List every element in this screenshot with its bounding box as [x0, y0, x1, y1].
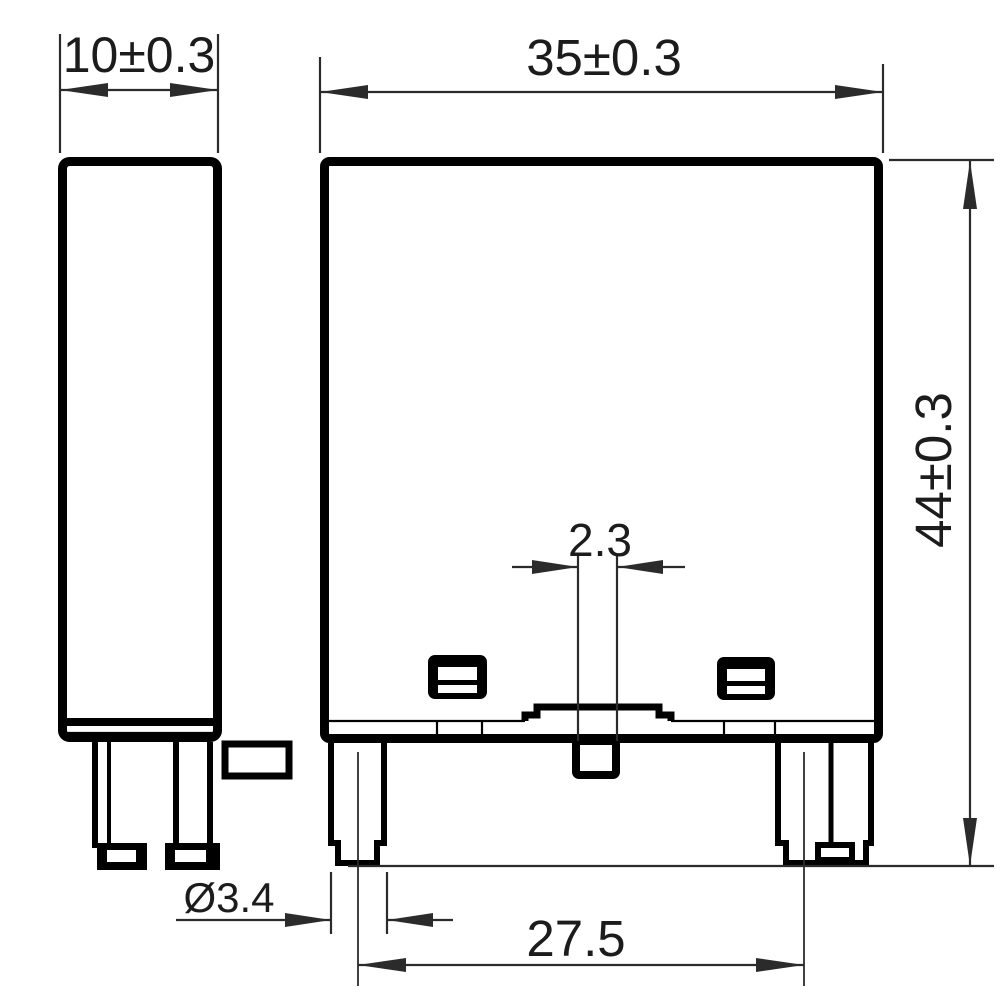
front-pin-right-notch	[818, 845, 852, 860]
dim-pin-pitch-label: 27.5	[526, 910, 625, 967]
arrowhead-right-icon	[170, 83, 218, 97]
dim-side-width-label: 10±0.3	[63, 27, 216, 83]
side-tab	[225, 744, 289, 776]
vent-slot-left-opening-top	[438, 667, 477, 680]
arrowhead-left-icon	[320, 85, 368, 99]
arrowhead-left-icon	[358, 958, 406, 972]
dim-body-height-label: 44±0.3	[905, 392, 962, 548]
front-body-outline	[325, 162, 879, 739]
dim-pin-pitch: 27.5	[358, 752, 804, 986]
arrowhead-right-icon	[835, 85, 883, 99]
dim-pin-diameter: Ø3.4	[176, 872, 453, 934]
vent-slot-right-opening-top	[727, 669, 765, 681]
arrowhead-right-icon	[756, 958, 804, 972]
arrowhead-left-icon	[60, 83, 108, 97]
side-view	[60, 162, 289, 871]
arrowhead-right-icon	[285, 913, 331, 927]
vent-slot-left-opening-bottom	[438, 685, 477, 693]
front-view	[325, 162, 879, 864]
vent-slot-right-opening-bottom	[727, 686, 765, 694]
technical-drawing: 10±0.3 35±0.3 44±0.3 2	[0, 0, 1000, 1000]
dim-side-width: 10±0.3	[60, 27, 218, 153]
side-foot-left-notch	[107, 850, 136, 862]
arrowhead-left-icon	[387, 913, 433, 927]
dim-body-width-label: 35±0.3	[526, 29, 682, 86]
vent-slot-left	[428, 655, 487, 699]
side-foot-right-notch	[175, 850, 206, 862]
arrowhead-up-icon	[963, 161, 977, 209]
drawing-canvas: 10±0.3 35±0.3 44±0.3 2	[0, 0, 1000, 1000]
vent-slot-right	[717, 657, 775, 700]
dim-center-pin-label: 2.3	[568, 514, 632, 566]
dim-body-width: 35±0.3	[320, 29, 883, 153]
front-center-pin	[576, 741, 616, 775]
dim-pin-diameter-label: Ø3.4	[183, 874, 274, 921]
side-body-outline	[63, 162, 218, 738]
arrowhead-down-icon	[963, 818, 977, 866]
